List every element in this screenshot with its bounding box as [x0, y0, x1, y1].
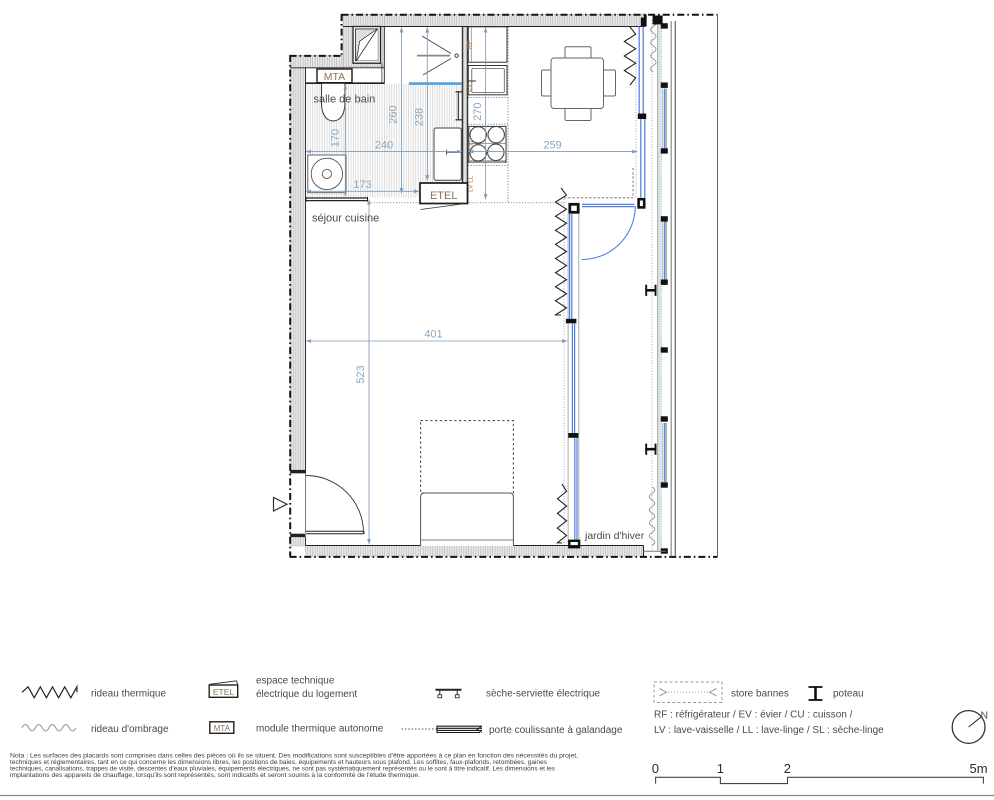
svg-text:techniques et réglementaires,: techniques et réglementaires, tant en ce… [10, 760, 547, 766]
svg-text:N: N [981, 710, 989, 722]
svg-text:rideau thermique: rideau thermique [91, 689, 166, 700]
svg-text:173: 173 [353, 179, 371, 191]
svg-text:séjour cuisine: séjour cuisine [312, 213, 379, 225]
svg-text:MTA: MTA [214, 724, 231, 733]
svg-text:techniques, canalisations, tra: techniques, canalisations, trappes de vi… [10, 767, 555, 773]
svg-text:porte coulissante à galandage: porte coulissante à galandage [489, 725, 623, 736]
svg-text:CU: CU [468, 141, 475, 151]
svg-text:jardin d'hiver: jardin d'hiver [584, 530, 645, 542]
svg-text:ETEL: ETEL [430, 190, 458, 202]
svg-text:poteau: poteau [833, 689, 864, 700]
svg-text:rideau d'ombrage: rideau d'ombrage [91, 724, 169, 735]
svg-text:LV : lave-vaisselle / LL : lav: LV : lave-vaisselle / LL : lave-linge / … [654, 725, 884, 736]
svg-text:espace technique: espace technique [256, 676, 335, 687]
svg-text:salle de bain: salle de bain [314, 94, 376, 106]
svg-text:170: 170 [330, 129, 342, 147]
svg-text:RF : réfrigérateur / EV : évie: RF : réfrigérateur / EV : évier / CU : c… [654, 710, 853, 721]
svg-text:MTA: MTA [324, 71, 345, 83]
svg-text:RF: RF [467, 40, 474, 49]
svg-text:module thermique autonome: module thermique autonome [256, 724, 384, 735]
svg-text:implantations des appareils de: implantations des appareils de chauffage… [10, 773, 420, 779]
svg-text:Nota : Les surfaces des placar: Nota : Les surfaces des placards sont co… [10, 754, 578, 760]
svg-text:LV LL: LV LL [468, 175, 475, 192]
svg-text:238: 238 [414, 108, 426, 126]
svg-text:ETEL: ETEL [213, 687, 235, 697]
svg-text:0: 0 [652, 761, 659, 776]
svg-text:5m: 5m [970, 761, 988, 776]
svg-text:240: 240 [375, 139, 393, 151]
svg-text:401: 401 [424, 329, 442, 341]
svg-text:store bannes: store bannes [731, 689, 789, 700]
svg-text:sèche-serviette électrique: sèche-serviette électrique [486, 689, 600, 700]
svg-text:259: 259 [543, 139, 561, 151]
svg-text:270: 270 [472, 103, 484, 121]
svg-text:2: 2 [784, 761, 791, 776]
svg-text:EV: EV [466, 83, 473, 92]
svg-text:1: 1 [717, 761, 724, 776]
svg-text:260: 260 [388, 105, 400, 123]
svg-text:523: 523 [355, 365, 367, 383]
svg-text:électrique du logement: électrique du logement [256, 689, 357, 700]
